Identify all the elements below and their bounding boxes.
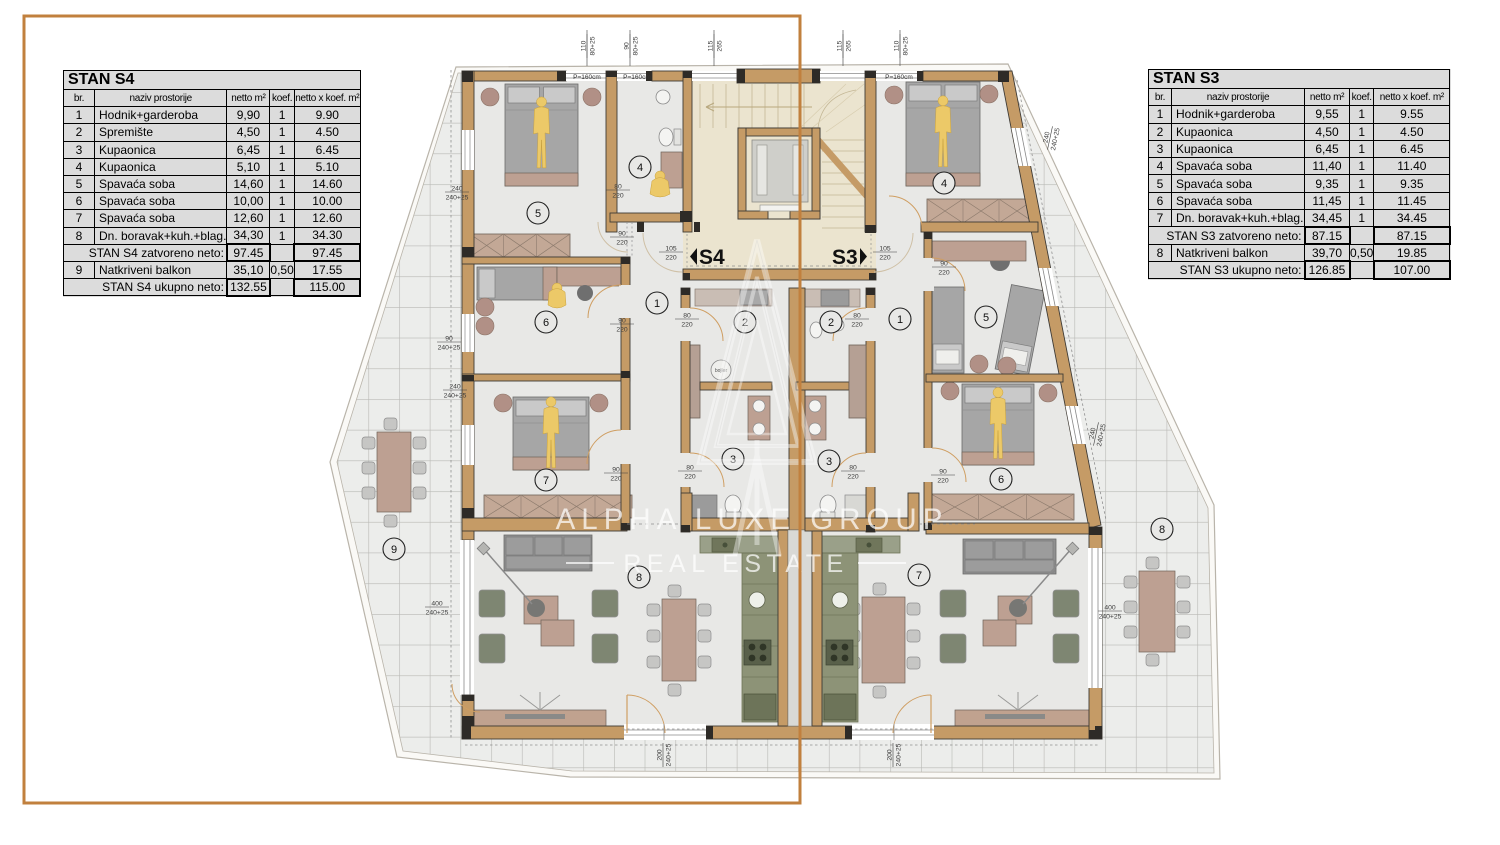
svg-text:ALPHA LUXE GROUP: ALPHA LUXE GROUP <box>556 503 949 536</box>
svg-text:115: 115 <box>708 40 715 51</box>
svg-text:110: 110 <box>894 40 901 51</box>
svg-text:240+25: 240+25 <box>446 195 469 202</box>
svg-text:220: 220 <box>610 476 622 483</box>
svg-text:220: 220 <box>937 478 949 485</box>
svg-text:3: 3 <box>826 456 832 468</box>
svg-text:220: 220 <box>879 255 891 262</box>
svg-text:105: 105 <box>879 246 891 253</box>
svg-text:90: 90 <box>618 318 626 325</box>
svg-text:240+25: 240+25 <box>666 743 673 766</box>
svg-text:240+25: 240+25 <box>438 345 461 352</box>
svg-text:6: 6 <box>543 317 549 329</box>
svg-text:P=160cm: P=160cm <box>573 74 601 81</box>
svg-text:REAL ESTATE: REAL ESTATE <box>623 550 848 578</box>
svg-text:240+25: 240+25 <box>1099 614 1122 621</box>
svg-text:2: 2 <box>828 317 834 329</box>
svg-text:110: 110 <box>581 40 588 51</box>
svg-text:80+25: 80+25 <box>590 36 597 55</box>
svg-text:7: 7 <box>543 475 549 487</box>
svg-text:240+25: 240+25 <box>444 393 467 400</box>
svg-text:115: 115 <box>837 40 844 51</box>
svg-text:9: 9 <box>391 544 397 556</box>
svg-text:90: 90 <box>624 42 631 50</box>
svg-text:220: 220 <box>665 255 677 262</box>
svg-text:105: 105 <box>665 246 677 253</box>
svg-text:200: 200 <box>657 749 664 761</box>
svg-text:90: 90 <box>445 336 453 343</box>
svg-text:240+25: 240+25 <box>426 610 449 617</box>
svg-text:220: 220 <box>616 240 628 247</box>
svg-text:200: 200 <box>887 749 894 761</box>
svg-text:4: 4 <box>637 162 643 174</box>
svg-text:90: 90 <box>618 231 626 238</box>
svg-text:265: 265 <box>717 40 724 52</box>
svg-text:80+25: 80+25 <box>903 36 910 55</box>
svg-text:8: 8 <box>1159 524 1165 536</box>
svg-text:S4: S4 <box>699 246 725 269</box>
svg-text:220: 220 <box>847 474 859 481</box>
svg-text:4: 4 <box>941 178 947 190</box>
svg-text:220: 220 <box>681 322 693 329</box>
svg-text:5: 5 <box>535 208 541 220</box>
svg-text:P=160cm: P=160cm <box>885 74 913 81</box>
svg-text:220: 220 <box>616 327 628 334</box>
svg-text:P=160cm: P=160cm <box>623 74 651 81</box>
svg-text:220: 220 <box>684 474 696 481</box>
svg-text:S3: S3 <box>832 246 858 269</box>
svg-text:5: 5 <box>983 312 989 324</box>
svg-text:400: 400 <box>431 601 443 608</box>
svg-text:220: 220 <box>612 193 624 200</box>
svg-text:220: 220 <box>938 270 950 277</box>
svg-text:220: 220 <box>851 322 863 329</box>
svg-text:90: 90 <box>612 467 620 474</box>
svg-text:90: 90 <box>939 469 947 476</box>
svg-text:1: 1 <box>654 298 660 310</box>
svg-text:6: 6 <box>998 474 1004 486</box>
svg-text:240: 240 <box>449 384 461 391</box>
svg-text:265: 265 <box>846 40 853 52</box>
svg-text:400: 400 <box>1104 605 1116 612</box>
svg-text:80: 80 <box>849 465 857 472</box>
svg-text:1: 1 <box>897 314 903 326</box>
svg-text:7: 7 <box>916 570 922 582</box>
svg-text:80: 80 <box>614 184 622 191</box>
svg-text:240: 240 <box>451 186 463 193</box>
svg-text:80+25: 80+25 <box>633 36 640 55</box>
svg-text:80: 80 <box>853 313 861 320</box>
svg-text:80: 80 <box>686 465 694 472</box>
svg-text:240+25: 240+25 <box>896 743 903 766</box>
svg-text:80: 80 <box>683 313 691 320</box>
svg-text:90: 90 <box>940 261 948 268</box>
